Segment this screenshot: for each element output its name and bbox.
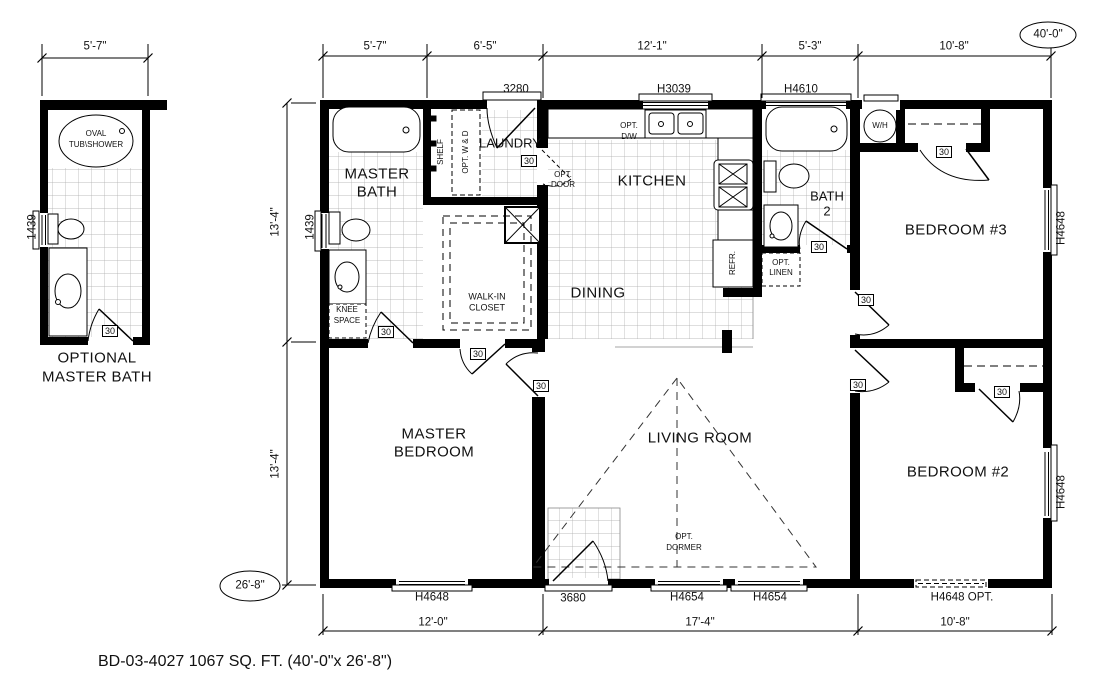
dim-left-1: 13'-4"	[270, 207, 282, 236]
door-size-label-optbath: 30	[102, 325, 118, 337]
room-walkin-closet-line1: WALK-IN	[468, 293, 505, 302]
shelf-label: SHELF	[437, 139, 445, 165]
opt-door-label-line1: OPT.	[554, 171, 572, 179]
door-size-label-master-bedroom: 30	[533, 380, 549, 392]
dim-left-2: 13'-4"	[270, 449, 282, 478]
dim-top-4: 5'-3"	[799, 41, 822, 53]
door-size-label-laundry-opt: 30	[521, 155, 537, 167]
knee-space-label-line2: SPACE	[334, 317, 361, 325]
door-size-label-br3-closet: 30	[936, 146, 952, 158]
bedroom-doors-closets	[855, 124, 1043, 422]
room-bath2-line2: 2	[823, 205, 830, 218]
window-h4648-br3-label: H4648	[1056, 211, 1068, 245]
oval-tub-label-line2: TUB\SHOWER	[69, 141, 123, 149]
room-laundry: LAUNDRY	[479, 137, 541, 150]
room-master-bath-line1: MASTER	[345, 167, 410, 182]
dim-top-5: 10'-8"	[939, 41, 968, 53]
opt-dishwasher-label-line2: D/W	[621, 133, 637, 141]
opt-dormer-label-line1: OPT.	[675, 533, 693, 541]
window-h4610-label: H4610	[784, 84, 818, 96]
optbath-title-line1: OPTIONAL	[57, 351, 136, 366]
window-h4648-br2-label: H4648	[1056, 475, 1068, 509]
window-h3039-label: H3039	[657, 84, 691, 96]
dim-top-3: 12'-1"	[637, 41, 666, 53]
knee-space-label-line1: KNEE	[336, 306, 358, 314]
oval-tub-label-line1: OVAL	[86, 130, 107, 138]
door-size-label-br2-closet: 30	[994, 386, 1010, 398]
window-h4654-b-label: H4654	[753, 592, 787, 604]
room-master-bedroom-line1: MASTER	[402, 427, 467, 442]
dim-optbath-width: 5'-7"	[84, 41, 107, 53]
door-size-label-bedroom2: 30	[850, 379, 866, 391]
overall-depth-bubble: 26'-8"	[235, 580, 264, 592]
window-h4654-a-label: H4654	[670, 592, 704, 604]
window-1439-label: 1439	[305, 214, 317, 240]
refrigerator-label: REFR.	[729, 251, 737, 275]
window-h4648-mbr-label: H4648	[415, 592, 449, 604]
plan-caption: BD-03-4027 1067 SQ. FT. (40'-0"x 26'-8")	[98, 653, 392, 671]
door-size-label-bath2: 30	[811, 241, 827, 253]
opt-linen-label-line1: OPT.	[772, 259, 790, 267]
room-bedroom3: BEDROOM #3	[905, 223, 1007, 238]
door-size-label-bedroom3: 30	[858, 294, 874, 306]
opt-washer-dryer-label: OPT. W & D	[462, 130, 470, 173]
window-h4648-opt-label: H4648 OPT.	[931, 592, 994, 604]
dim-top-1: 5'-7"	[364, 41, 387, 53]
opt-dishwasher-label-line1: OPT.	[620, 122, 638, 130]
opt-linen-label-line2: LINEN	[769, 269, 793, 277]
optbath-title-line2: MASTER BATH	[42, 370, 152, 385]
room-dining: DINING	[571, 286, 626, 301]
opt-dormer-label-line2: DORMER	[666, 544, 702, 552]
optbath-window-label: 1439	[27, 214, 39, 240]
opt-door-label-line2: DOOR	[551, 181, 575, 189]
room-master-bedroom-line2: BEDROOM	[394, 445, 474, 460]
floor-plan-page: 5'-7" OVAL TUB\SHOWER 1439 30 OPTIONAL M…	[0, 0, 1104, 699]
door-3680-label: 3680	[560, 593, 586, 605]
dim-bottom-2: 17'-4"	[685, 617, 714, 629]
dim-bottom-3: 10'-8"	[940, 617, 969, 629]
dim-bottom-1: 12'-0"	[418, 617, 447, 629]
room-master-bath-line2: BATH	[357, 185, 398, 200]
door-3280-label: 3280	[503, 84, 529, 96]
room-bath2-line1: BATH	[810, 190, 844, 203]
room-kitchen: KITCHEN	[618, 174, 687, 189]
room-bedroom2: BEDROOM #2	[907, 465, 1009, 480]
door-size-label-walkin-closet: 30	[470, 348, 486, 360]
water-heater-label: W/H	[872, 122, 888, 130]
door-size-label-master-bath: 30	[378, 326, 394, 338]
dim-top-2: 6'-5"	[474, 41, 497, 53]
room-walkin-closet-line2: CLOSET	[469, 304, 505, 313]
room-living: LIVING ROOM	[648, 431, 752, 446]
overall-width-bubble: 40'-0"	[1033, 29, 1062, 41]
